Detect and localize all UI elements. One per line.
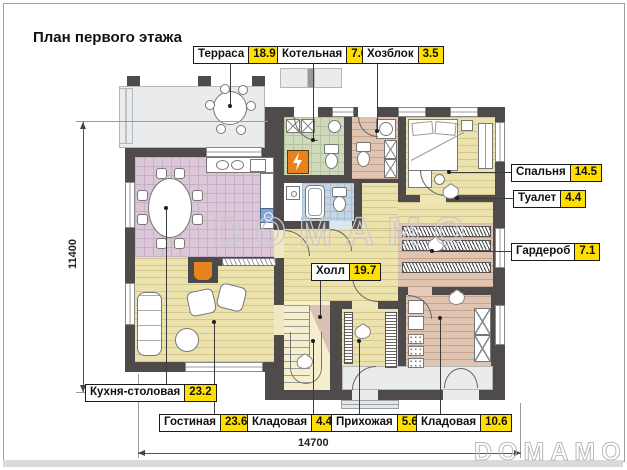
callout-line xyxy=(313,64,314,140)
area-value: 14.5 xyxy=(571,164,602,182)
callout-dot xyxy=(455,196,459,200)
fireplace xyxy=(188,257,218,283)
window xyxy=(185,362,263,372)
callout-line xyxy=(359,341,360,414)
toilet-bowl xyxy=(325,153,338,169)
callout-line xyxy=(432,251,511,252)
pantry-cabinet xyxy=(474,335,491,362)
bedroom-wardrobe xyxy=(478,123,493,169)
terrace-steps xyxy=(119,88,133,144)
dining-chair xyxy=(192,214,203,225)
callout-dot xyxy=(311,339,315,343)
dining-chair xyxy=(137,190,148,201)
dining-chair xyxy=(174,238,185,249)
extension-line xyxy=(76,121,268,122)
terrace-sliding-door xyxy=(206,147,262,157)
room-label-entry: Прихожая5.6 xyxy=(331,414,423,432)
window xyxy=(125,283,135,325)
dimension-width: 14700 xyxy=(298,437,329,449)
terrace-chair xyxy=(236,125,246,135)
callout-dot xyxy=(311,138,315,142)
kitchen-sink xyxy=(231,160,244,170)
dimension-line-horizontal xyxy=(138,453,521,454)
bed xyxy=(408,119,458,171)
callout-line xyxy=(313,341,314,414)
dimension-height: 11400 xyxy=(67,239,79,269)
terrace-chair xyxy=(220,84,230,94)
entry-steps xyxy=(341,400,399,409)
callout-line xyxy=(320,281,321,317)
callout-dot xyxy=(375,129,379,133)
room-label-bedroom: Спальня14.5 xyxy=(511,164,602,182)
watermark-center: DOMAMO xyxy=(213,210,478,255)
dining-chair xyxy=(192,190,203,201)
callout-dot xyxy=(430,249,434,253)
utility-shelf xyxy=(384,140,397,159)
window xyxy=(332,107,354,117)
terrace-chair xyxy=(246,101,256,111)
stove xyxy=(250,159,266,172)
callout-line xyxy=(377,64,378,131)
callout-line xyxy=(457,198,513,199)
area-value: 19.7 xyxy=(350,263,381,281)
tv-console xyxy=(222,258,276,266)
area-value: 18.9 xyxy=(249,46,280,64)
callout-line xyxy=(440,318,441,414)
terrace-chair xyxy=(238,85,248,95)
area-value: 23.2 xyxy=(185,384,216,402)
terrace-chair xyxy=(216,124,226,134)
callout-line xyxy=(166,208,167,384)
dimension-arrow xyxy=(138,450,145,456)
window xyxy=(495,305,505,345)
room-label-hall: Холл19.7 xyxy=(311,263,381,281)
utility-shelf xyxy=(384,159,397,178)
window xyxy=(125,182,135,228)
room-label-boiler: Котельная7.6 xyxy=(277,46,372,64)
area-value: 7.1 xyxy=(575,243,600,261)
boiler-sink xyxy=(328,120,341,133)
room-label-wardrobe: Гардероб7.1 xyxy=(511,243,600,261)
door-opening-boiler xyxy=(294,107,318,117)
sofa xyxy=(137,292,162,356)
callout-dot xyxy=(318,315,322,319)
area-value: 10.6 xyxy=(481,414,512,432)
room-label-kitchen: Кухня-столовая23.2 xyxy=(85,384,217,402)
shower-icon xyxy=(286,186,300,200)
window xyxy=(450,107,478,117)
floor-plan-canvas: План первого этажа xyxy=(0,0,627,470)
dining-chair xyxy=(174,168,185,179)
double-door-opening xyxy=(443,390,479,400)
dimension-arrow xyxy=(80,122,86,129)
area-value: 4.4 xyxy=(561,190,586,208)
callout-dot xyxy=(212,320,216,324)
callout-dot xyxy=(164,206,168,210)
dimension-line-vertical xyxy=(83,122,84,392)
pantry-bin xyxy=(408,346,424,356)
window xyxy=(398,107,426,117)
door-opening-entry xyxy=(352,301,378,310)
callout-dot xyxy=(438,316,442,320)
dining-chair xyxy=(137,214,148,225)
callout-dot xyxy=(228,104,232,108)
page-title: План первого этажа xyxy=(33,29,182,46)
kitchen-sink xyxy=(216,160,229,170)
window xyxy=(495,122,505,162)
terrace-chair xyxy=(205,100,215,110)
callout-line xyxy=(449,172,511,173)
coffee-table xyxy=(175,328,199,352)
area-value: 3.5 xyxy=(419,46,444,64)
room-label-pantry-large: Кладовая10.6 xyxy=(416,414,512,432)
callout-line xyxy=(230,64,231,106)
window xyxy=(495,228,505,268)
pantry-bin xyxy=(408,358,424,368)
callout-dot xyxy=(357,339,361,343)
clothes-hanger-icon xyxy=(446,288,468,311)
toilet-bowl xyxy=(357,151,370,167)
electrical-panel-icon xyxy=(287,150,309,174)
callout-dot xyxy=(447,170,451,174)
dining-table xyxy=(148,178,192,238)
door-opening-utility xyxy=(358,107,378,117)
utility-sink xyxy=(379,122,393,136)
pantry-bin xyxy=(408,334,424,344)
door-opening-living-stairs xyxy=(274,305,284,335)
dining-chair xyxy=(156,168,167,179)
room-label-terrace: Терраса18.9 xyxy=(193,46,281,64)
room-label-pantry-small: Кладовая4.4 xyxy=(247,414,337,432)
clothes-rail xyxy=(402,262,491,273)
room-label-living: Гостиная23.6 xyxy=(159,414,252,432)
clothes-hanger-icon xyxy=(352,322,374,345)
boiler-porch xyxy=(280,68,342,88)
front-door-opening xyxy=(352,390,378,400)
pantry-cabinet xyxy=(474,308,491,335)
room-label-utility: Хозблок3.5 xyxy=(362,46,444,64)
clothes-hanger-icon xyxy=(440,182,462,205)
watermark-corner: DOMAMO xyxy=(474,438,627,467)
nightstand xyxy=(461,120,473,131)
coat-rack xyxy=(385,312,397,368)
room-label-toilet: Туалет4.4 xyxy=(513,190,586,208)
